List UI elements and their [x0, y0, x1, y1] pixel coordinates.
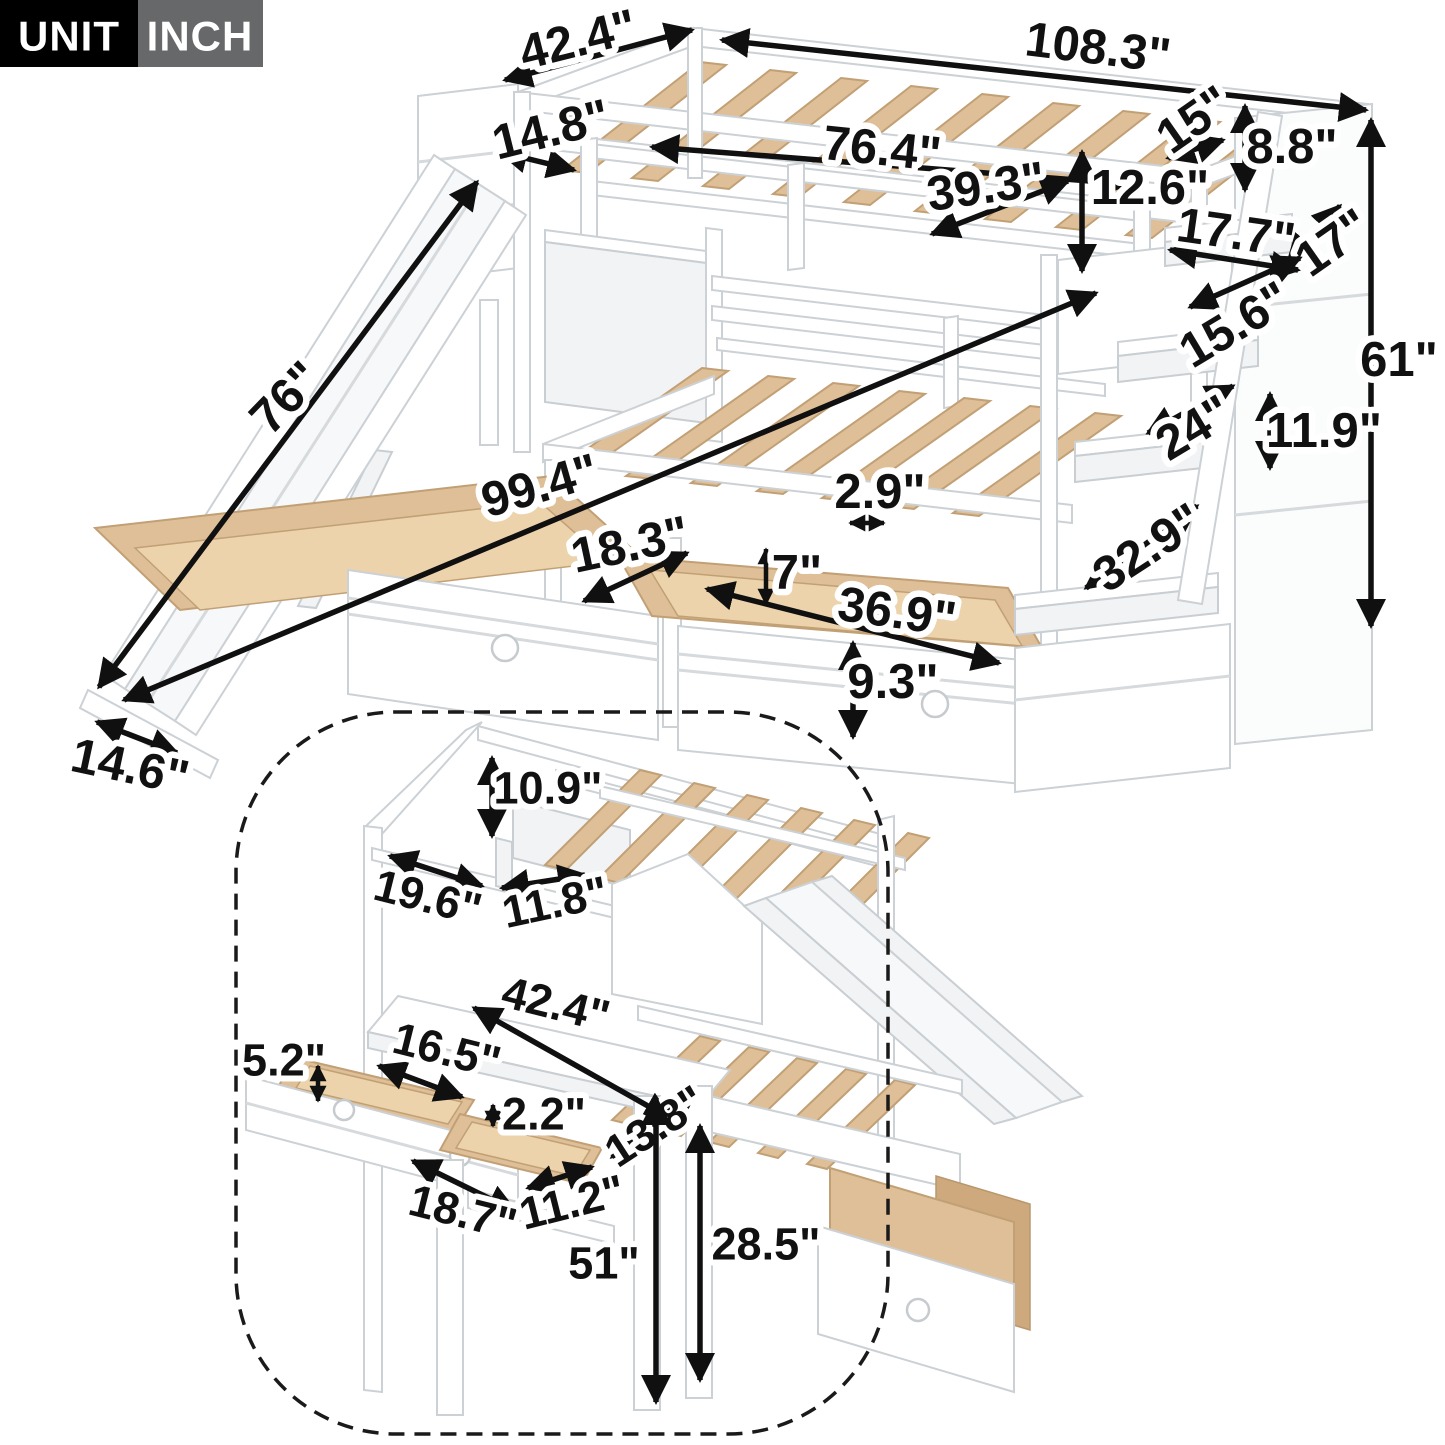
svg-text:39.3": 39.3" — [924, 152, 1049, 222]
dim-tray-inner-height: 2.2" — [493, 1089, 586, 1140]
product-dimension-diagram: UNIT INCH 42.4" 108.3" 14.8" 76.4" 39.3"… — [0, 0, 1445, 1445]
dim-roof-shelf-depth: 11.8" — [498, 866, 613, 938]
svg-text:9.3": 9.3" — [847, 655, 938, 709]
svg-text:51": 51" — [568, 1238, 639, 1289]
dim-slide-end-width: 14.6" — [66, 722, 193, 806]
stair-base-drawer — [1015, 624, 1230, 792]
svg-text:61": 61" — [1360, 333, 1438, 387]
drawer-left-knob — [492, 635, 518, 661]
svg-text:7": 7" — [772, 546, 822, 600]
svg-text:11.9": 11.9" — [1266, 404, 1382, 458]
slide-support-post — [480, 300, 498, 445]
svg-text:11.8": 11.8" — [498, 866, 613, 938]
svg-text:2.2": 2.2" — [502, 1089, 586, 1140]
diagram-canvas: UNIT INCH 42.4" 108.3" 14.8" 76.4" 39.3"… — [0, 0, 1445, 1445]
unit-label: UNIT — [18, 13, 120, 60]
inset-underbed-drawer — [818, 1168, 1030, 1392]
dim-overall-height: 61" — [1360, 120, 1438, 626]
unit-value: INCH — [147, 13, 254, 60]
dim-roof-shelf-width: 19.6" — [369, 856, 487, 935]
svg-text:2.9": 2.9" — [834, 465, 925, 519]
svg-text:28.5": 28.5" — [712, 1219, 821, 1270]
post-back-left — [688, 28, 702, 178]
drawer-right — [618, 556, 1042, 786]
svg-text:10.9": 10.9" — [494, 763, 603, 814]
unit-badge: UNIT INCH — [0, 0, 263, 67]
inset-roof-slope — [366, 722, 482, 834]
dim-drawer-inner-height: 7" — [766, 546, 822, 604]
inset-loft-illustration — [246, 722, 1082, 1415]
dim-slat-gap: 2.9" — [834, 465, 925, 523]
svg-text:8.8": 8.8" — [1246, 120, 1337, 174]
svg-text:5.2": 5.2" — [242, 1035, 326, 1086]
dim-underbed-clearance: 28.5" — [700, 1126, 820, 1380]
dim-shelf-opening-height: 11.9" — [1266, 394, 1382, 468]
